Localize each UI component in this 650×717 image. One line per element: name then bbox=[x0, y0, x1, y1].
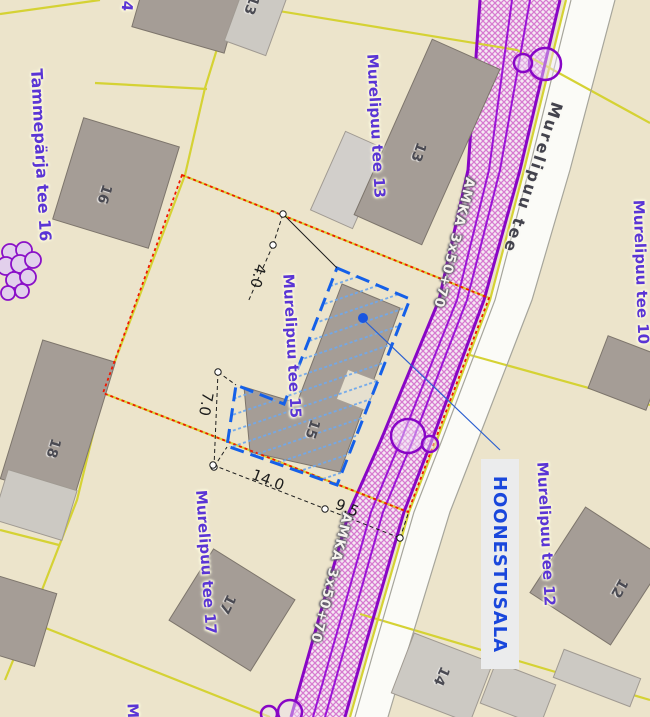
building-area-annotation-text: HOONESTUSALA bbox=[490, 475, 511, 652]
tree-group-icon bbox=[0, 242, 41, 300]
building-area-dot bbox=[358, 313, 368, 323]
building-area-annotation: HOONESTUSALA bbox=[481, 459, 519, 669]
map-canvas[interactable]: Tammepärja tee 16 Murelipuu tee 13 Murel… bbox=[0, 0, 650, 717]
map-graphics bbox=[0, 0, 650, 717]
